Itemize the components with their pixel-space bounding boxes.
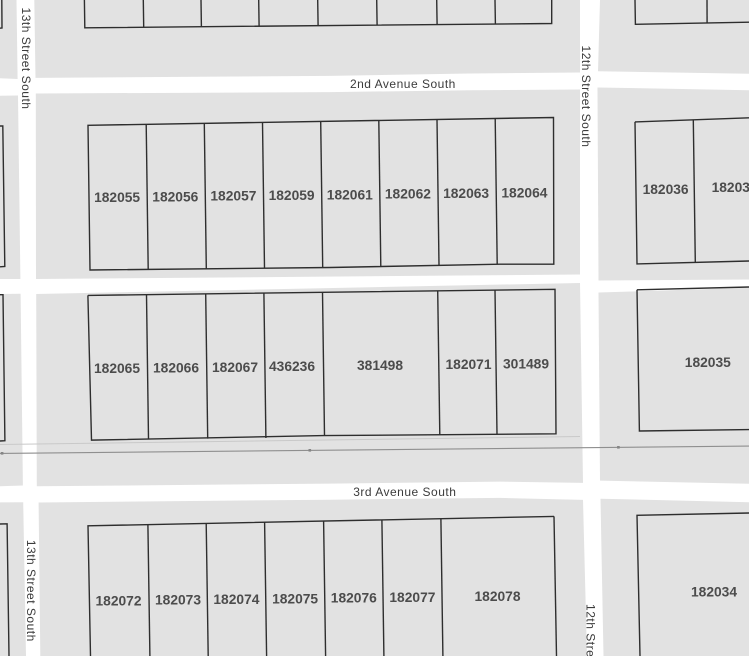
svg-text:182062: 182062 xyxy=(385,187,431,202)
svg-text:182035: 182035 xyxy=(685,355,731,370)
svg-text:182065: 182065 xyxy=(94,361,140,376)
svg-text:12th Street South: 12th Street South xyxy=(583,604,597,656)
svg-text:182037: 182037 xyxy=(712,180,749,195)
svg-text:182063: 182063 xyxy=(443,186,489,201)
svg-text:182057: 182057 xyxy=(210,189,256,204)
svg-text:182072: 182072 xyxy=(95,593,141,608)
svg-text:13th Street South: 13th Street South xyxy=(19,8,33,110)
svg-text:182075: 182075 xyxy=(272,591,318,606)
svg-text:182066: 182066 xyxy=(153,361,199,376)
svg-text:182071: 182071 xyxy=(445,357,491,372)
svg-text:301489: 301489 xyxy=(503,356,549,371)
svg-text:2nd Avenue South: 2nd Avenue South xyxy=(350,77,456,91)
svg-text:3rd Avenue South: 3rd Avenue South xyxy=(353,485,456,499)
svg-text:182076: 182076 xyxy=(331,591,377,606)
svg-text:182056: 182056 xyxy=(152,189,198,204)
svg-text:182036: 182036 xyxy=(643,182,689,197)
svg-text:182073: 182073 xyxy=(155,593,201,608)
svg-text:182067: 182067 xyxy=(212,360,258,375)
svg-text:436236: 436236 xyxy=(269,359,315,374)
svg-text:12th Street South: 12th Street South xyxy=(579,46,593,148)
svg-text:182061: 182061 xyxy=(327,187,373,202)
svg-text:182055: 182055 xyxy=(94,190,140,205)
svg-text:182059: 182059 xyxy=(269,188,315,203)
svg-text:381498: 381498 xyxy=(357,358,403,373)
svg-text:182064: 182064 xyxy=(501,185,547,200)
svg-text:182077: 182077 xyxy=(389,590,435,605)
svg-text:182034: 182034 xyxy=(691,584,737,599)
svg-text:182078: 182078 xyxy=(474,589,520,604)
svg-text:182074: 182074 xyxy=(213,592,259,607)
svg-text:13th Street South: 13th Street South xyxy=(24,540,38,642)
